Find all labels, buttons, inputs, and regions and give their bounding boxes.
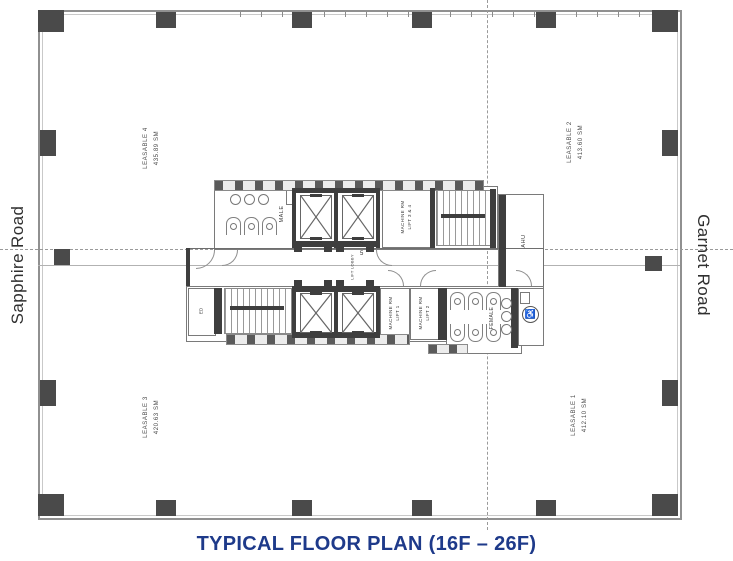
female-toilet-label: FEMALE [489,307,495,329]
male-toilet-label: MALE [279,206,285,223]
leasable-1-name: LEASABLE 1 [571,394,578,436]
structural-column [38,10,64,32]
floor-plan-page: Sapphire Road Garnet Road LEASABLE 4 435… [0,0,733,561]
lift-lobby-label: LIFT LOBBY [350,254,355,280]
lift-door-jamb [294,280,302,286]
structural-column [662,130,678,156]
lobby-end-wall [186,248,190,286]
lift-door-jamb [336,280,344,286]
basin-icon [501,311,512,322]
lift-car [342,293,374,333]
structural-column [662,380,678,406]
lift-x-icon [301,196,331,238]
structural-column [292,12,312,28]
lift-shaft-wall [376,286,380,338]
toilet-stall [226,217,241,235]
machine-room-lift-3-4-label: MACHINE RM LIFT 3 & 4 [400,201,412,234]
machine-room-label-line1: MACHINE RM [418,297,423,330]
lift-door-jamb [366,280,374,286]
toilet-icon [454,329,461,336]
machine-room-label-line1: MACHINE RM [388,297,393,330]
lift-lobby [186,248,544,288]
toilet-stall [244,217,259,235]
lift-shaft-wall [334,286,338,338]
machine-room-label-line1: MACHINE RM [400,201,405,234]
machine-room-label-line2: LIFT 1 [395,305,400,320]
plan-title: TYPICAL FLOOR PLAN (16F – 26F) [0,533,733,556]
toilet-icon [490,298,497,305]
lift-car [342,195,374,239]
lift-door-jamb [324,280,332,286]
toilet-icon [520,292,530,304]
structural-column [536,500,556,516]
leasable-4-name: LEASABLE 4 [143,127,150,169]
toilet-stall [468,324,483,342]
toilet-icon [490,329,497,336]
core-wall [214,288,222,334]
ahu-wall [499,195,506,287]
lift-door-jamb [366,247,374,252]
machine-room-label-line2: LIFT 2 [425,305,430,320]
toilet-icon [472,329,479,336]
lift-car [300,195,332,239]
structural-column [652,494,678,516]
toilet-stall [262,217,277,235]
structural-column [38,494,64,516]
lift-shaft-wall [292,188,296,248]
structural-column [645,256,662,271]
lift-x-icon [343,294,373,332]
leasable-3-area: 420.63 SM [154,400,161,434]
stair-landing-bar [230,306,284,310]
leasable-4-area: 435.89 SM [154,131,161,165]
leasable-3-name: LEASABLE 3 [143,396,150,438]
ahu-label: AHU [521,234,527,247]
leasable-4-label: LEASABLE 4 435.89 SM [143,127,161,169]
structural-column [40,130,56,156]
machine-room-lift-2-label: MACHINE RM LIFT 2 [418,297,430,330]
structural-column [156,500,176,516]
road-label-left: Sapphire Road [8,206,28,325]
basin-icon [230,194,241,205]
lift-door-jamb [324,247,332,252]
lift-door-jamb [336,247,344,252]
toilet-icon [266,223,273,230]
toilet-icon [454,298,461,305]
toilet-icon [230,223,237,230]
core-wall [438,288,447,340]
lift-x-icon [301,294,331,332]
lift-x-icon [343,196,373,238]
basin-icon [501,298,512,309]
leasable-2-label: LEASABLE 2 413.60 SM [567,121,585,163]
stair-number-label: 5 [360,251,363,257]
wheelchair-icon: ♿ [522,306,539,323]
structural-column [412,12,432,28]
structural-column [54,249,70,265]
lift-shaft-wall [334,188,338,248]
toilet-stall [450,292,465,310]
lift-car [300,293,332,333]
basin-icon [258,194,269,205]
leasable-1-area: 412.10 SM [582,398,589,432]
toilet-icon [472,298,479,305]
core-wall [511,288,518,348]
basin-icon [244,194,255,205]
core-hatch-strip [428,344,468,354]
basin-icon [501,324,512,335]
structural-column [536,12,556,28]
leasable-1-label: LEASABLE 1 412.10 SM [571,394,589,436]
structural-column [412,500,432,516]
road-label-right: Garnet Road [693,214,713,316]
ed-label: ED [199,308,204,314]
toilet-stall [468,292,483,310]
structural-column [292,500,312,516]
toilet-icon [248,223,255,230]
machine-room-lift-1-label: MACHINE RM LIFT 1 [388,297,400,330]
leasable-3-label: LEASABLE 3 420.63 SM [143,396,161,438]
core-wall [430,188,435,248]
stairwell-lower [224,288,292,334]
toilet-stall [450,324,465,342]
structural-column [652,10,678,32]
machine-room-label-line2: LIFT 3 & 4 [407,205,412,230]
leasable-2-area: 413.60 SM [578,125,585,159]
lift-door-jamb [294,247,302,252]
core-wall [490,189,496,248]
stair-landing-bar [441,214,485,218]
structural-column [40,380,56,406]
lift-shaft-wall [376,188,380,248]
stairwell-upper [436,190,492,246]
leasable-2-name: LEASABLE 2 [567,121,574,163]
structural-column [156,12,176,28]
lift-shaft-wall [292,286,296,338]
